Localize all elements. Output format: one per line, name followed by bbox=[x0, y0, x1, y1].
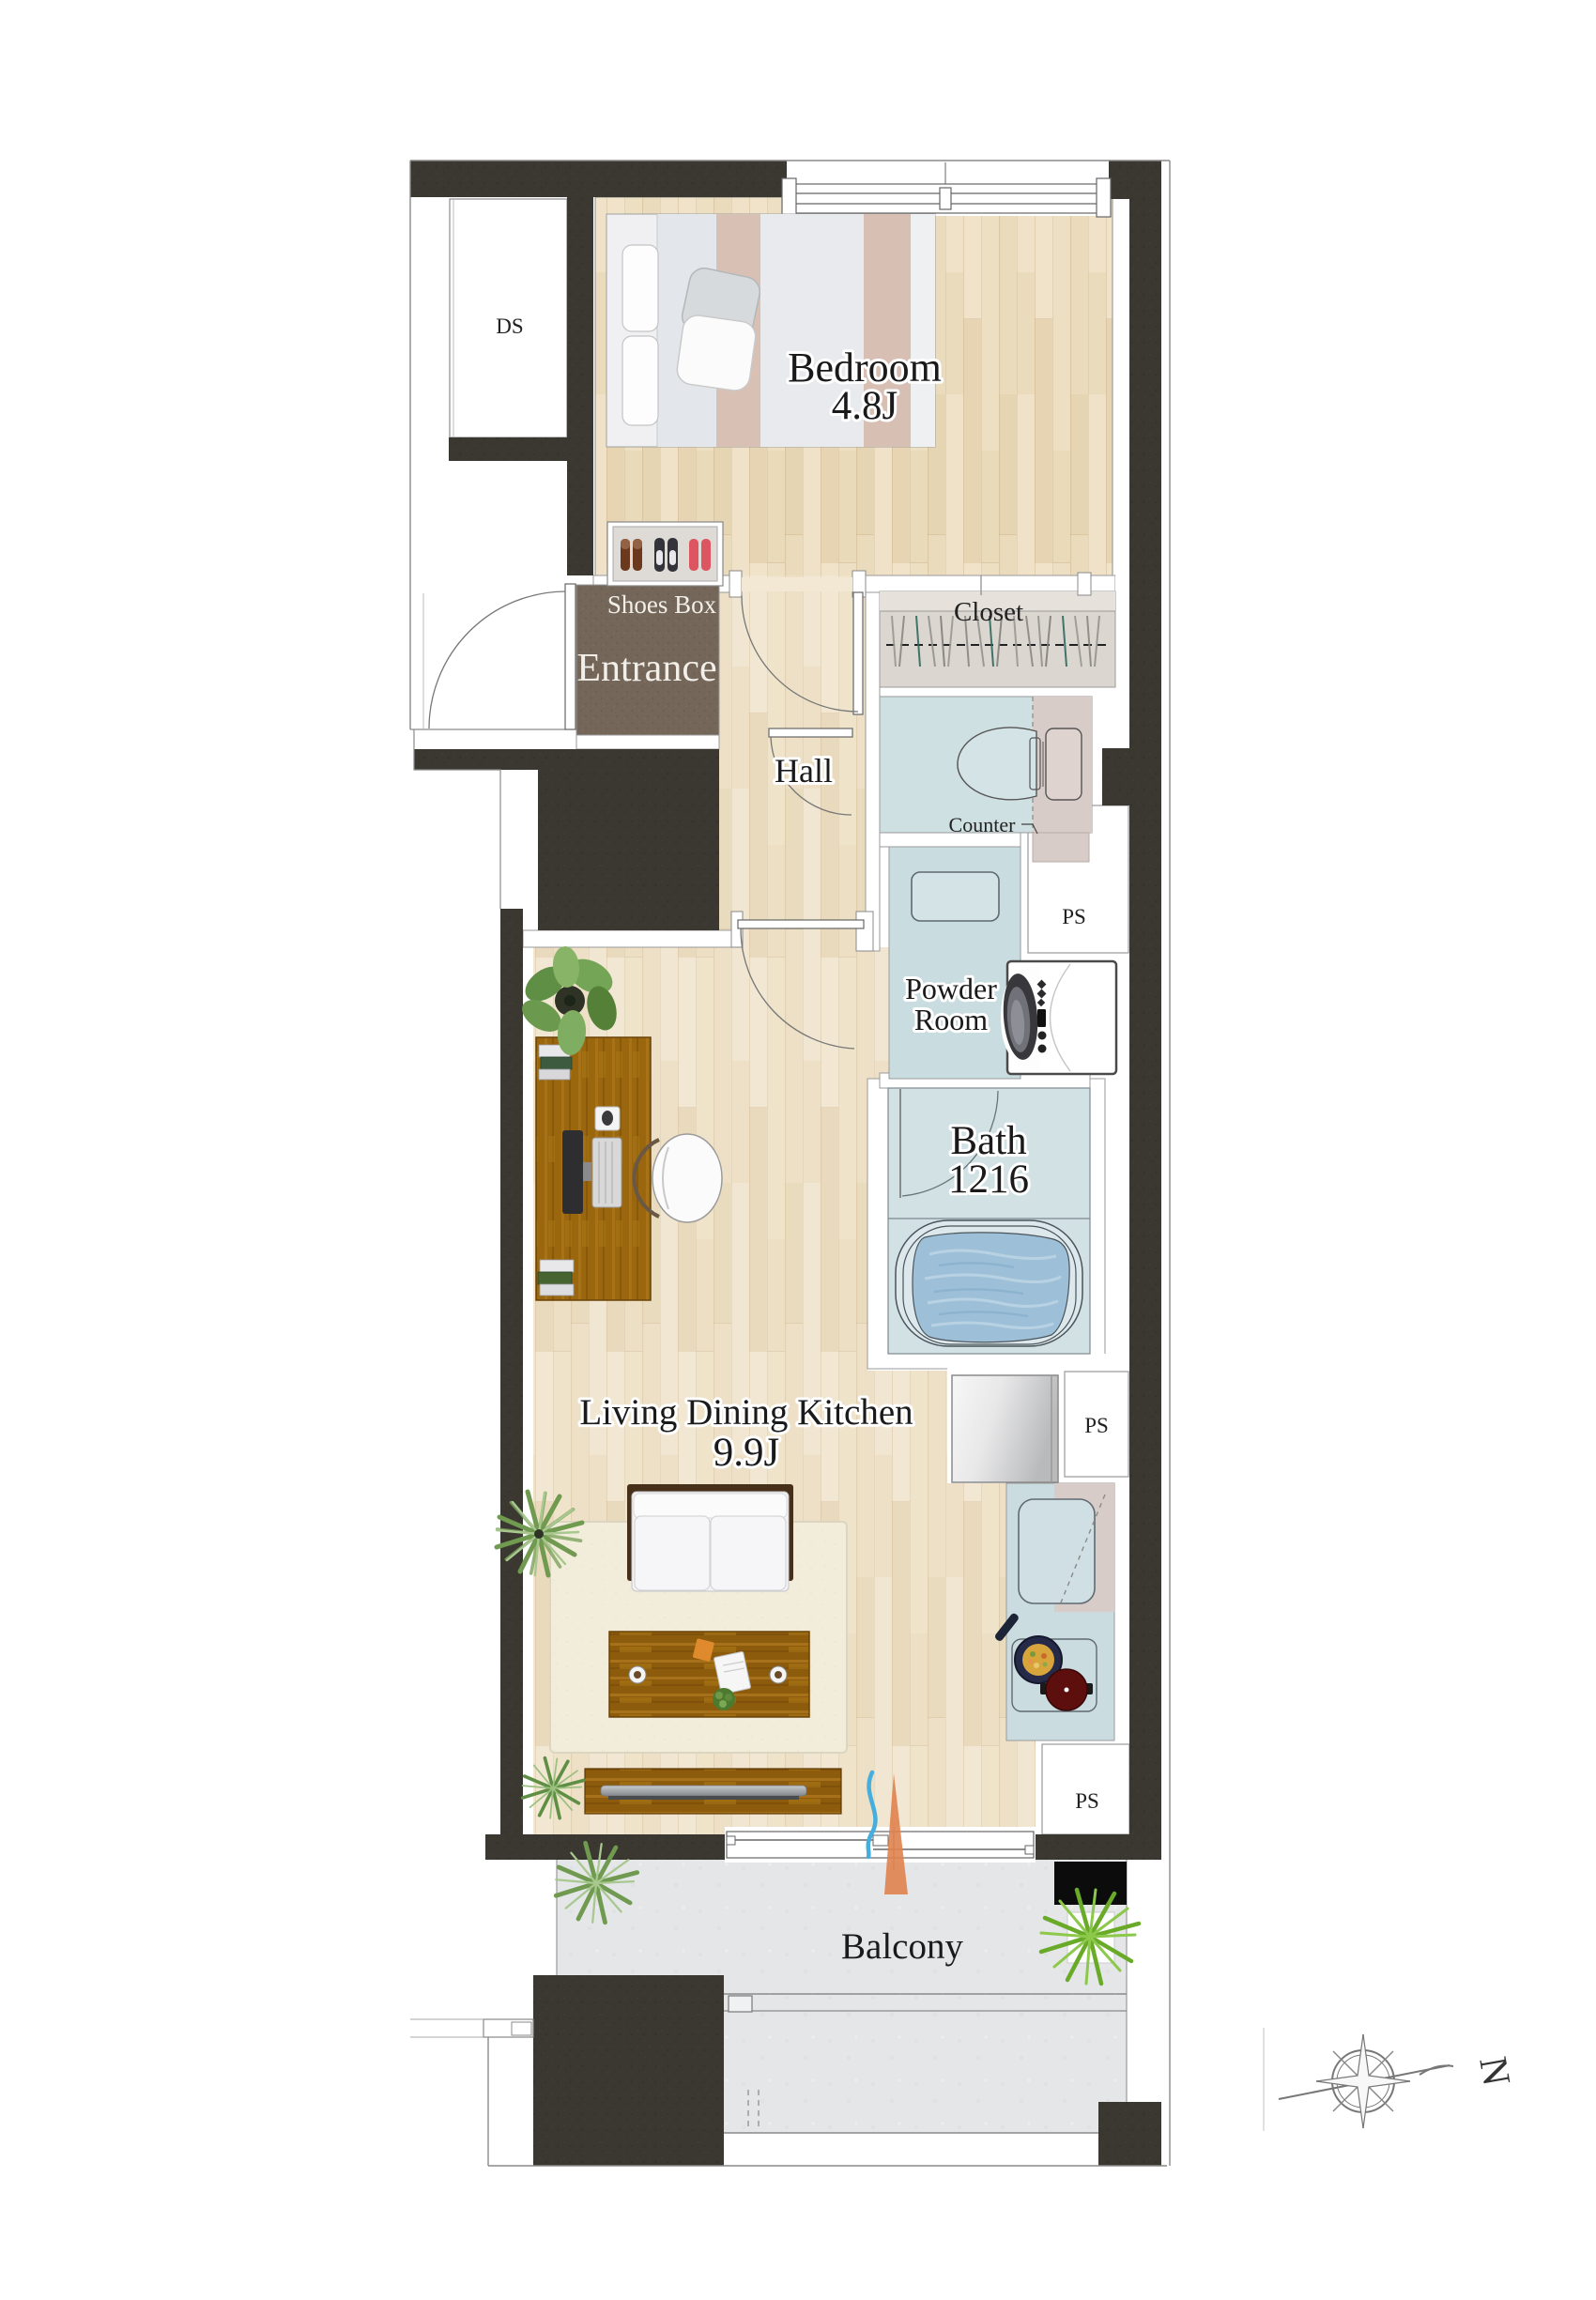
svg-text:PS: PS bbox=[1084, 1414, 1109, 1437]
svg-text:Counter: Counter bbox=[949, 813, 1017, 836]
svg-text:9.9J: 9.9J bbox=[714, 1431, 779, 1475]
svg-text:PS: PS bbox=[1062, 905, 1086, 928]
svg-text:Balcony: Balcony bbox=[841, 1926, 963, 1967]
svg-text:DS: DS bbox=[496, 314, 523, 338]
svg-text:Powder: Powder bbox=[905, 972, 997, 1005]
svg-text:PS: PS bbox=[1075, 1789, 1099, 1813]
svg-text:Closet: Closet bbox=[954, 597, 1023, 627]
svg-text:Hall: Hall bbox=[775, 752, 833, 790]
svg-text:Bath: Bath bbox=[950, 1119, 1026, 1163]
svg-text:Entrance: Entrance bbox=[576, 647, 716, 690]
svg-text:1216: 1216 bbox=[948, 1158, 1029, 1202]
svg-text:4.8J: 4.8J bbox=[832, 384, 898, 428]
svg-text:Living Dining Kitchen: Living Dining Kitchen bbox=[579, 1392, 913, 1433]
svg-text:Shoes Box: Shoes Box bbox=[607, 590, 717, 619]
svg-text:Room: Room bbox=[914, 1003, 988, 1036]
